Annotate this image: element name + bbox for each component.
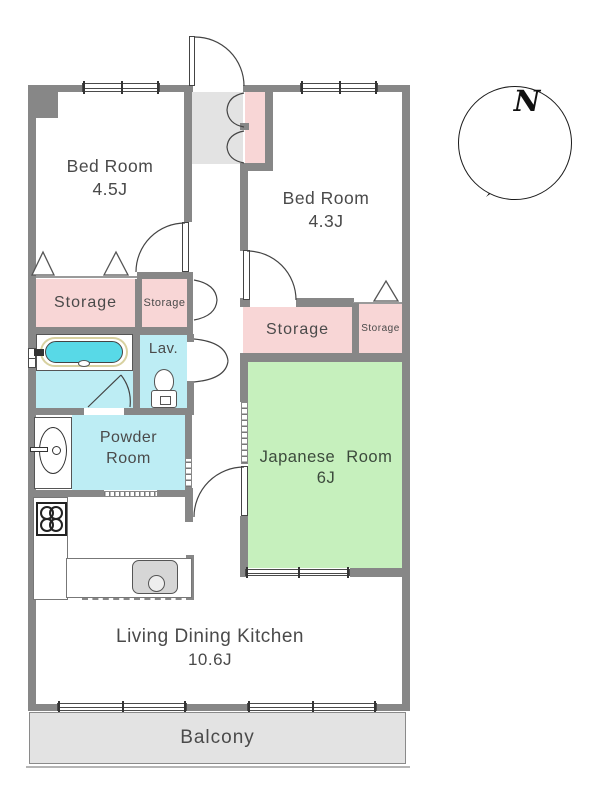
wall — [240, 353, 402, 362]
room-name: Storage — [266, 320, 329, 341]
japanese-room-label: Japanese Room 6J — [252, 442, 400, 494]
wall — [28, 85, 82, 92]
wall — [187, 334, 194, 342]
wall — [133, 334, 140, 415]
lavatory-door-arcs — [194, 339, 228, 382]
wall — [265, 85, 273, 171]
balcony-label: Balcony — [180, 727, 255, 749]
bedroom-west-door-arc — [136, 223, 185, 272]
wall — [160, 85, 193, 92]
window — [247, 703, 377, 711]
room-area: 6J — [317, 468, 335, 489]
room-name: Storage — [143, 296, 185, 310]
wall — [157, 490, 193, 497]
counter-edge-dashed-line — [82, 598, 192, 600]
bedroom-west-label: Bed Room 4.5J — [35, 150, 185, 206]
vanity-faucet-icon — [30, 447, 48, 452]
lavatory-label: Lav. — [140, 336, 187, 362]
room-name: Japanese Room — [260, 447, 393, 468]
room-name: Powder — [100, 428, 157, 449]
room-name: Bed Room — [67, 155, 154, 178]
wall — [350, 568, 402, 577]
wall — [352, 303, 359, 353]
vanity-drain — [52, 446, 61, 455]
room-area: 4.3J — [308, 210, 343, 233]
window — [300, 83, 378, 92]
wall — [135, 279, 142, 327]
window — [57, 703, 187, 711]
wall — [240, 516, 248, 570]
wall — [377, 704, 410, 711]
floor-plan: Balcony — [0, 0, 615, 800]
wall — [28, 490, 104, 497]
entrance-genkan-area — [192, 92, 243, 164]
room-area: 4.5J — [92, 178, 127, 201]
wall — [240, 362, 248, 402]
bathtub-drain — [78, 360, 90, 367]
stove-icon — [36, 502, 67, 536]
window — [82, 83, 160, 92]
balcony-outer-line — [26, 766, 410, 768]
wall — [28, 408, 84, 415]
room-name: Storage — [54, 293, 117, 314]
accordion-door-track — [103, 491, 158, 497]
bedroom-east-label: Bed Room 4.3J — [260, 184, 392, 236]
wall — [184, 92, 192, 222]
bedroom-west-door-leaf — [182, 222, 189, 272]
powder-room-label: Powder Room — [72, 420, 185, 478]
storage-west-small-door-arcs — [194, 280, 217, 320]
room-name: Room — [106, 449, 151, 470]
balcony: Balcony — [29, 712, 406, 764]
wall — [402, 85, 410, 711]
wall — [187, 279, 193, 327]
wall — [240, 163, 273, 171]
closet-marker-triangle — [104, 252, 128, 275]
storage-west-large-label: Storage — [36, 279, 135, 327]
entrance-door-leaf — [189, 36, 195, 86]
sliding-door-track — [241, 402, 248, 464]
sliding-door-track — [185, 458, 192, 488]
wall — [240, 123, 249, 130]
room-area: 10.6J — [188, 649, 232, 671]
toilet-tank-icon — [151, 390, 177, 408]
wall — [28, 704, 58, 711]
wall — [240, 171, 248, 251]
bedroom-east-door-arc — [247, 251, 296, 300]
ldk-door-arc — [194, 467, 244, 517]
entrance-door-arc — [195, 37, 244, 86]
ldk-label: Living Dining Kitchen 10.6J — [58, 622, 362, 674]
room-name: Storage — [361, 322, 400, 335]
room-name: Bed Room — [283, 187, 370, 210]
wall — [124, 408, 193, 415]
closet-front-line — [36, 276, 137, 278]
storage-east-large-label: Storage — [243, 307, 352, 353]
storage-east-small-label: Storage — [359, 303, 402, 353]
wall — [185, 415, 192, 458]
room-name: Lav. — [149, 339, 178, 359]
closet-marker-triangle — [374, 281, 398, 301]
bedroom-east-door-leaf — [243, 250, 250, 300]
window — [245, 569, 350, 576]
compass-north-label: N — [505, 84, 549, 120]
room-name: Living Dining Kitchen — [116, 625, 304, 650]
ldk-door-leaf — [241, 466, 248, 516]
storage-west-small-label: Storage — [142, 279, 187, 327]
wall — [186, 704, 247, 711]
wall — [296, 298, 354, 307]
bath-faucet-icon — [34, 349, 44, 356]
kitchen-sink-icon — [132, 560, 178, 594]
wall — [137, 272, 193, 279]
